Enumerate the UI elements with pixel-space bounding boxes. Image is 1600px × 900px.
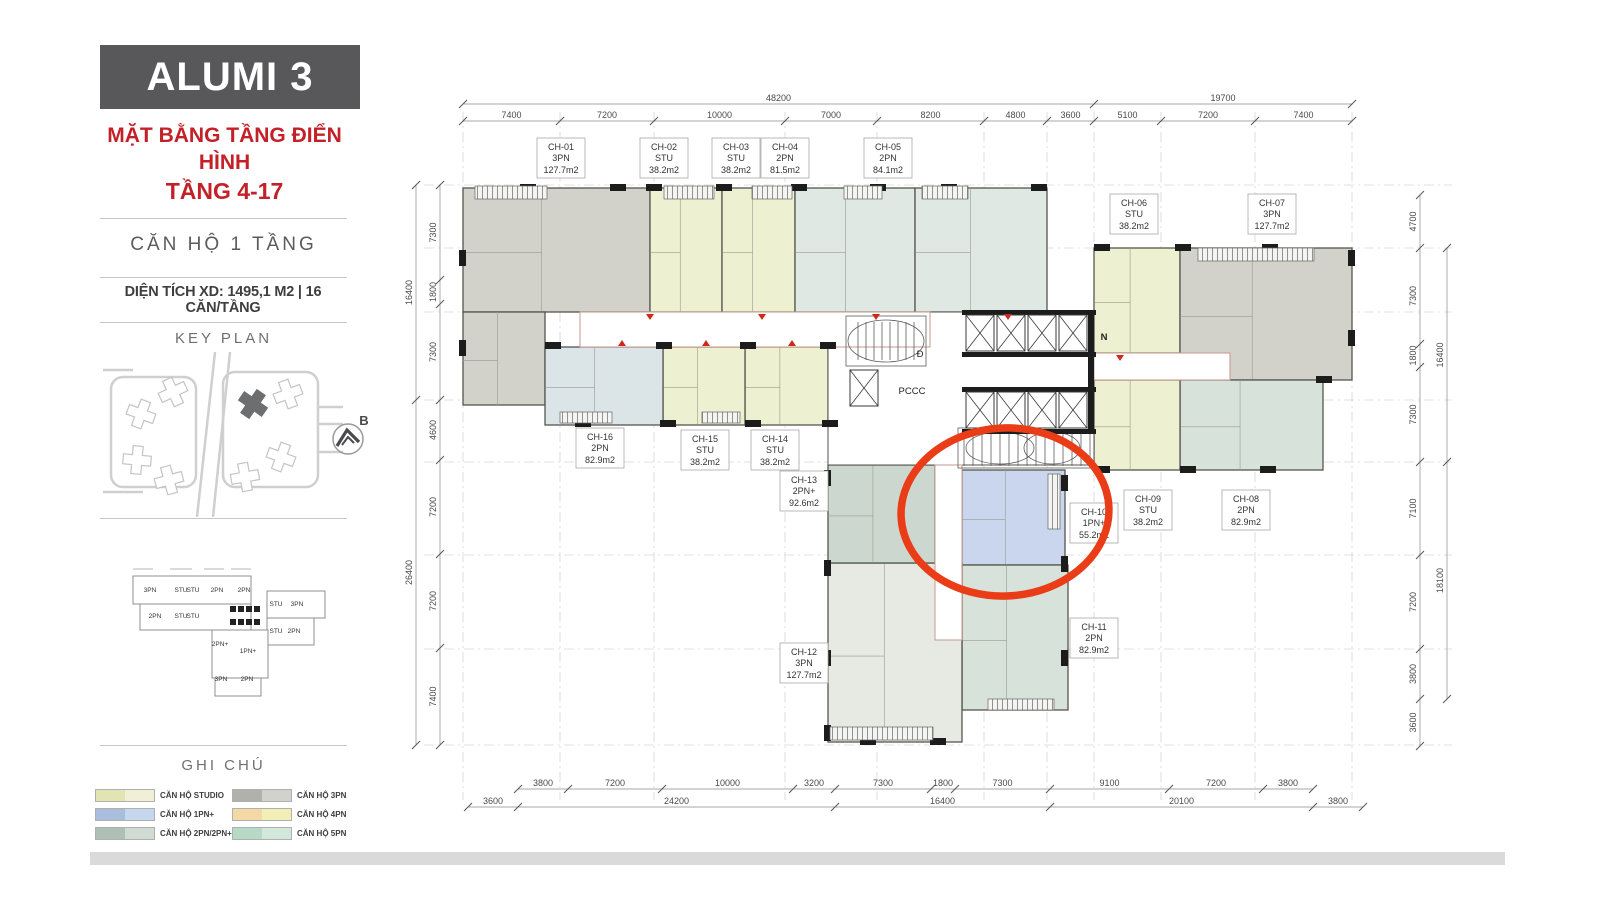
divider <box>100 518 347 519</box>
legend-item: CĂN HỘ 2PN/2PN+ <box>95 827 232 840</box>
dim-chain-bottom_inner: 3800720010000320073001800730091007200380… <box>514 778 1317 793</box>
dimension-label: 16400 <box>404 280 414 305</box>
key-plan-building <box>154 373 191 410</box>
mini-plan-label: 2PN <box>211 587 224 594</box>
dimension-label: 7200 <box>1408 592 1418 612</box>
unit-CH-13 <box>828 465 935 563</box>
svg-text:CH-01: CH-01 <box>548 142 574 152</box>
unit-CH-09 <box>1094 380 1180 470</box>
mini-plan-label: STU <box>270 601 283 608</box>
dim-chain-top_inner: 7400720010000700082004800360051007200740… <box>459 110 1356 125</box>
legend-label: CĂN HỘ 1PN+ <box>160 810 214 819</box>
dimension-label: 7200 <box>428 497 438 517</box>
unit-label-CH-02: CH-02STU38.2m2 <box>640 138 688 178</box>
unit-label-CH-06: CH-06STU38.2m2 <box>1110 194 1158 234</box>
svg-text:3PN: 3PN <box>795 658 813 668</box>
dimension-label: 3600 <box>483 796 503 806</box>
mini-plan-label: 2PN <box>149 613 162 620</box>
svg-text:38.2m2: 38.2m2 <box>1133 517 1163 527</box>
dimension-label: 9100 <box>1099 778 1119 788</box>
dimension-label: 3600 <box>1060 110 1080 120</box>
svg-text:CH-06: CH-06 <box>1121 198 1147 208</box>
dimension-label: 7400 <box>501 110 521 120</box>
dimension-label: 7400 <box>1293 110 1313 120</box>
dimension-label: 1800 <box>933 778 953 788</box>
mini-plan-label: 3PN <box>291 601 304 608</box>
elevator-icon <box>1059 392 1087 428</box>
area-info-label: DIỆN TÍCH XD: 1495,1 M2 | 16 CĂN/TẦNG <box>92 284 354 316</box>
balcony <box>475 186 547 199</box>
svg-text:CH-12: CH-12 <box>791 647 817 657</box>
svg-text:CH-05: CH-05 <box>875 142 901 152</box>
mini-plan-label: 3PN <box>215 676 228 683</box>
dimension-label: 7300 <box>428 222 438 242</box>
dimension-label: 7200 <box>1198 110 1218 120</box>
balcony <box>922 186 968 199</box>
svg-text:2PN: 2PN <box>1085 633 1103 643</box>
balcony <box>1198 248 1314 261</box>
unit-label-CH-11: CH-112PN82.9m2 <box>1070 618 1118 658</box>
svg-text:38.2m2: 38.2m2 <box>760 457 790 467</box>
corridor <box>935 465 962 640</box>
unit-label-CH-14: CH-14STU38.2m2 <box>751 430 799 470</box>
divider <box>100 218 347 219</box>
svg-text:STU: STU <box>1125 209 1143 219</box>
legend-swatch <box>232 808 292 821</box>
key-plan-building <box>152 463 186 497</box>
elevator-icon <box>997 315 1025 351</box>
dimension-label: 7200 <box>597 110 617 120</box>
dimension-label: 4800 <box>1005 110 1025 120</box>
unit-label-CH-16: CH-162PN82.9m2 <box>576 428 624 468</box>
svg-text:82.9m2: 82.9m2 <box>585 455 615 465</box>
dimension-label: 10000 <box>707 110 732 120</box>
dimension-label: 8200 <box>920 110 940 120</box>
legend-item: CĂN HỘ STUDIO <box>95 789 232 802</box>
dimension-label: 1800 <box>428 282 438 302</box>
project-title: ALUMI 3 <box>100 45 360 109</box>
compass-indicator: B <box>328 412 374 458</box>
svg-text:38.2m2: 38.2m2 <box>1119 221 1149 231</box>
divider <box>100 322 347 323</box>
dimension-label: 3600 <box>1408 712 1418 732</box>
svg-text:CH-11: CH-11 <box>1081 622 1106 632</box>
unit-label-CH-05: CH-052PN84.1m2 <box>864 138 912 178</box>
balcony <box>664 186 714 199</box>
legend-item: CĂN HỘ 1PN+ <box>95 808 232 821</box>
svg-text:38.2m2: 38.2m2 <box>721 165 751 175</box>
elevator-icon <box>966 392 994 428</box>
dimension-label: 3800 <box>1278 778 1298 788</box>
legend-swatch <box>232 827 292 840</box>
dimension-label: 7000 <box>821 110 841 120</box>
svg-text:CH-14: CH-14 <box>762 434 788 444</box>
dimension-label: 26400 <box>404 560 414 585</box>
dimension-label: 3800 <box>1328 796 1348 806</box>
svg-text:CH-03: CH-03 <box>723 142 749 152</box>
dimension-label: 4600 <box>428 420 438 440</box>
key-plan-map <box>103 352 343 517</box>
legend-item: CĂN HỘ 4PN <box>232 808 369 821</box>
balcony <box>560 412 612 423</box>
dimension-label: 7200 <box>605 778 625 788</box>
svg-text:CH-08: CH-08 <box>1233 494 1259 504</box>
svg-text:2PN+: 2PN+ <box>793 486 816 496</box>
svg-text:2PN: 2PN <box>879 153 897 163</box>
svg-text:82.9m2: 82.9m2 <box>1079 645 1109 655</box>
unit-CH-03 <box>722 188 795 312</box>
legend-title: GHI CHÚ <box>100 757 347 774</box>
svg-text:CH-09: CH-09 <box>1135 494 1161 504</box>
svg-text:CH-04: CH-04 <box>772 142 798 152</box>
legend-swatch <box>95 827 155 840</box>
unit-type-label: CĂN HỘ 1 TẦNG <box>100 234 347 256</box>
svg-text:2PN: 2PN <box>776 153 794 163</box>
key-plan-current-building <box>234 385 273 424</box>
balcony <box>1048 474 1060 529</box>
compass-label: B <box>359 413 368 428</box>
mini-plan-label: STU <box>187 613 200 620</box>
svg-text:CH-16: CH-16 <box>587 432 613 442</box>
north-arrow-inner-icon <box>342 437 354 445</box>
corridor <box>1094 353 1230 380</box>
dimension-label: 24200 <box>664 796 689 806</box>
n-label: N <box>1101 332 1108 343</box>
mini-plan-label: 2PN+ <box>212 641 229 648</box>
balcony <box>988 699 1054 710</box>
unit-label-CH-09: CH-09STU38.2m2 <box>1124 490 1172 530</box>
dimension-label: 7300 <box>992 778 1012 788</box>
svg-text:STU: STU <box>655 153 673 163</box>
balcony <box>702 412 740 423</box>
svg-text:3PN: 3PN <box>1263 209 1281 219</box>
balcony <box>830 727 933 740</box>
dimension-label: 7300 <box>873 778 893 788</box>
dimension-label: 4700 <box>1408 211 1418 231</box>
dimension-label: 3800 <box>1408 664 1418 684</box>
dimension-label: 18100 <box>1435 568 1445 593</box>
legend: CĂN HỘ STUDIOCĂN HỘ 1PN+CĂN HỘ 2PN/2PN+C… <box>95 786 369 843</box>
dimension-label: 1800 <box>1408 345 1418 365</box>
svg-text:CH-13: CH-13 <box>791 475 817 485</box>
dimension-label: 7200 <box>428 591 438 611</box>
elevator-icon <box>1028 315 1056 351</box>
elevator-icon <box>966 315 994 351</box>
unit-label-CH-15: CH-15STU38.2m2 <box>681 430 729 470</box>
unit-CH-04 <box>795 188 915 312</box>
unit-label-CH-04: CH-042PN81.5m2 <box>761 138 809 178</box>
legend-label: CĂN HỘ 3PN <box>297 791 346 800</box>
svg-text:2PN: 2PN <box>1237 505 1255 515</box>
elevator-icon <box>1059 315 1087 351</box>
dimension-label: 3200 <box>804 778 824 788</box>
legend-label: CĂN HỘ STUDIO <box>160 791 224 800</box>
svg-text:STU: STU <box>1139 505 1157 515</box>
key-plan-building <box>122 445 152 475</box>
legend-item: CĂN HỘ 3PN <box>232 789 369 802</box>
dimension-label: 16400 <box>1435 342 1445 367</box>
unit-label-CH-01: CH-013PN127.7m2 <box>537 138 585 178</box>
key-plan-building <box>263 439 299 475</box>
dim-chain-right_inner: 47007300180073007100720038003600 <box>1408 191 1424 750</box>
elevator-icon <box>850 370 878 406</box>
plan-subtitle-line1: MẶT BẰNG TẦNG ĐIỂN HÌNH <box>82 122 367 177</box>
pccc-label: PCCC <box>899 386 926 397</box>
key-plan-building <box>123 396 159 432</box>
dimension-label: 5100 <box>1117 110 1137 120</box>
mini-plan-diagram: 3PNSTUSTU2PN2PNSTU3PN2PNSTUSTUSTU2PN2PN+… <box>100 553 355 723</box>
legend-label: CĂN HỘ 5PN <box>297 829 346 838</box>
svg-text:84.1m2: 84.1m2 <box>873 165 903 175</box>
dimension-label: 3800 <box>533 778 553 788</box>
legend-item: CĂN HỘ 5PN <box>232 827 369 840</box>
svg-text:38.2m2: 38.2m2 <box>690 457 720 467</box>
balcony <box>844 186 882 199</box>
dimension-label: 10000 <box>715 778 740 788</box>
legend-swatch <box>95 808 155 821</box>
dimension-label: 7200 <box>1206 778 1226 788</box>
stair-d-label: Đ <box>917 349 924 360</box>
dimension-label: 19700 <box>1210 93 1235 103</box>
svg-text:82.9m2: 82.9m2 <box>1231 517 1261 527</box>
svg-text:CH-15: CH-15 <box>692 434 718 444</box>
divider <box>100 277 347 278</box>
unit-label-CH-12: CH-123PN127.7m2 <box>780 643 828 683</box>
legend-swatch <box>95 789 155 802</box>
svg-text:STU: STU <box>696 445 714 455</box>
mini-plan-label: 1PN+ <box>240 648 257 655</box>
svg-text:2PN: 2PN <box>591 443 609 453</box>
key-plan-building <box>270 376 306 412</box>
elevator-icon <box>997 392 1025 428</box>
dimension-label: 7300 <box>428 342 438 362</box>
balcony <box>752 186 792 199</box>
svg-text:CH-02: CH-02 <box>651 142 677 152</box>
mini-plan-label: STU <box>270 628 283 635</box>
dimension-label: 7300 <box>1408 286 1418 306</box>
unit-CH-14 <box>745 347 828 425</box>
unit-CH-05 <box>915 188 1047 312</box>
dimension-label: 7300 <box>1408 404 1418 424</box>
dim-chain-top_outer: 4820019700 <box>459 93 1356 108</box>
svg-text:81.5m2: 81.5m2 <box>770 165 800 175</box>
divider <box>100 745 347 746</box>
dimension-label: 20100 <box>1169 796 1194 806</box>
legend-label: CĂN HỘ 2PN/2PN+ <box>160 829 232 838</box>
dimension-label: 48200 <box>766 93 791 103</box>
unit-label-CH-13: CH-132PN+92.6m2 <box>780 471 828 511</box>
dim-chain-left_inner: 7300180073004600720072007400 <box>428 181 444 749</box>
key-plan-building <box>229 461 261 493</box>
svg-text:3PN: 3PN <box>552 153 570 163</box>
mini-plan-label: 2PN <box>238 587 251 594</box>
footer-bar <box>90 852 1505 865</box>
svg-text:CH-07: CH-07 <box>1259 198 1285 208</box>
unit-CH-02 <box>650 188 722 312</box>
unit-label-CH-07: CH-073PN127.7m2 <box>1248 194 1296 234</box>
svg-text:1PN+: 1PN+ <box>1083 518 1106 528</box>
mini-plan-label: STU <box>187 587 200 594</box>
legend-label: CĂN HỘ 4PN <box>297 810 346 819</box>
svg-text:127.7m2: 127.7m2 <box>543 165 578 175</box>
plan-subtitle-line2: TẦNG 4-17 <box>82 177 367 207</box>
info-sidebar: ALUMI 3 MẶT BẰNG TẦNG ĐIỂN HÌNH TẦNG 4-1… <box>0 0 400 900</box>
svg-text:38.2m2: 38.2m2 <box>649 165 679 175</box>
dimension-label: 7400 <box>428 686 438 706</box>
plan-subtitle: MẶT BẰNG TẦNG ĐIỂN HÌNH TẦNG 4-17 <box>82 122 367 206</box>
svg-text:STU: STU <box>727 153 745 163</box>
mini-plan-label: 3PN <box>144 587 157 594</box>
mini-plan-label: 2PN <box>288 628 301 635</box>
unit-label-CH-03: CH-03STU38.2m2 <box>712 138 760 178</box>
elevator-icon <box>1028 392 1056 428</box>
mini-plan-label: 2PN <box>241 676 254 683</box>
dim-chain-right_outer: 1640018100 <box>1435 244 1451 703</box>
compass-circle <box>333 424 363 454</box>
svg-text:CH-10: CH-10 <box>1081 507 1107 517</box>
svg-text:STU: STU <box>766 445 784 455</box>
svg-text:92.6m2: 92.6m2 <box>789 498 819 508</box>
unit-CH-08 <box>1180 380 1323 470</box>
unit-label-CH-08: CH-082PN82.9m2 <box>1222 490 1270 530</box>
dimension-label: 7100 <box>1408 498 1418 518</box>
svg-text:127.7m2: 127.7m2 <box>786 670 821 680</box>
legend-swatch <box>232 789 292 802</box>
dimension-label: 16400 <box>930 796 955 806</box>
key-plan-title: KEY PLAN <box>100 330 347 347</box>
svg-text:127.7m2: 127.7m2 <box>1254 221 1289 231</box>
dim-chain-left_outer: 1640026400 <box>404 181 420 749</box>
dim-chain-bottom_outer: 36002420016400201003800 <box>464 796 1367 811</box>
